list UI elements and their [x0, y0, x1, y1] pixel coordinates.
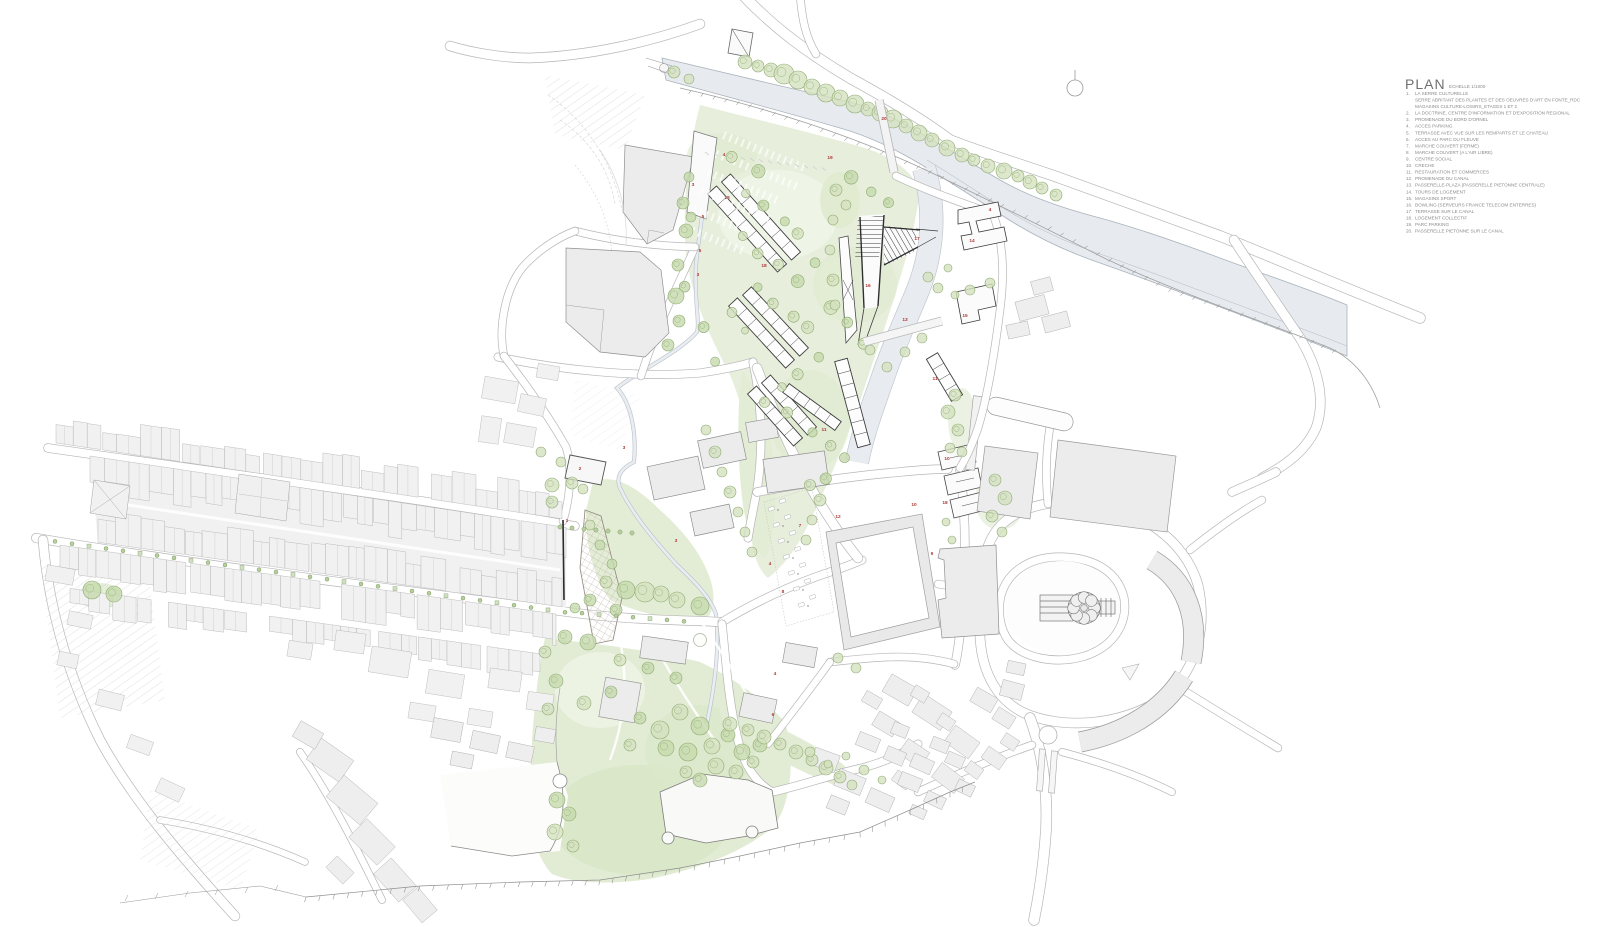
- svg-text:PROMENADE DU BORD D'ORNEL: PROMENADE DU BORD D'ORNEL: [1415, 117, 1489, 122]
- svg-text:8.: 8.: [1406, 150, 1410, 155]
- svg-text:11.: 11.: [1406, 170, 1412, 175]
- svg-text:14: 14: [969, 238, 975, 244]
- svg-text:MARCHE COUVERT (FERME): MARCHE COUVERT (FERME): [1415, 143, 1479, 148]
- svg-text:6.: 6.: [1406, 137, 1410, 142]
- svg-text:4: 4: [774, 671, 777, 677]
- svg-text:12: 12: [835, 514, 841, 520]
- svg-text:ECHELLE 1/1000: ECHELLE 1/1000: [1449, 84, 1486, 89]
- svg-text:15: 15: [962, 313, 968, 319]
- svg-text:17: 17: [914, 236, 920, 242]
- svg-text:16.: 16.: [1406, 202, 1412, 207]
- svg-text:LA DOCTRINE. CENTRE D'INFORMAT: LA DOCTRINE. CENTRE D'INFORMATION ET D'E…: [1415, 111, 1570, 116]
- svg-text:ACCES AU PARC DU FLEUVE: ACCES AU PARC DU FLEUVE: [1415, 137, 1479, 142]
- svg-text:10: 10: [911, 502, 917, 508]
- svg-text:5: 5: [702, 214, 705, 220]
- svg-text:11: 11: [821, 427, 826, 433]
- svg-text:BOWLING (SERVEURS FRANCE TELEC: BOWLING (SERVEURS FRANCE TELECOM ENTERRE…: [1415, 202, 1537, 207]
- svg-text:7.: 7.: [1406, 143, 1410, 148]
- svg-text:9: 9: [931, 551, 934, 557]
- svg-text:20.: 20.: [1406, 229, 1412, 234]
- svg-text:1.: 1.: [1406, 91, 1410, 96]
- svg-text:19: 19: [827, 155, 833, 161]
- svg-text:20: 20: [881, 116, 887, 122]
- svg-text:LOGEMENT COLLECTIF: LOGEMENT COLLECTIF: [1415, 216, 1467, 221]
- svg-text:CRECHE: CRECHE: [1415, 163, 1434, 168]
- svg-text:18: 18: [724, 195, 730, 201]
- svg-text:3: 3: [697, 272, 700, 278]
- svg-text:4: 4: [989, 207, 992, 213]
- svg-text:TERRASSE AVEC VUE SUR LES REMP: TERRASSE AVEC VUE SUR LES REMPARTS ET LE…: [1415, 130, 1548, 135]
- svg-text:PROMENADE DU CANAL: PROMENADE DU CANAL: [1415, 176, 1470, 181]
- svg-text:PASSERELLE-PLAZA (PASSERELLE P: PASSERELLE-PLAZA (PASSERELLE PIETONNE CE…: [1415, 183, 1545, 188]
- svg-text:18: 18: [942, 500, 948, 506]
- svg-text:ACCES PARKING: ACCES PARKING: [1415, 124, 1453, 129]
- svg-text:10: 10: [944, 456, 950, 462]
- svg-text:15.: 15.: [1406, 196, 1412, 201]
- svg-text:TOURS DE LOGEMENT: TOURS DE LOGEMENT: [1415, 189, 1466, 194]
- svg-text:PASSERELLE PIETONNE SUR LE CAN: PASSERELLE PIETONNE SUR LE CANAL: [1415, 229, 1504, 234]
- svg-text:PLAN: PLAN: [1405, 76, 1446, 92]
- svg-text:10.: 10.: [1406, 163, 1412, 168]
- svg-text:13: 13: [902, 317, 908, 323]
- svg-text:4.: 4.: [1406, 124, 1410, 129]
- svg-text:4: 4: [723, 152, 726, 158]
- svg-text:3: 3: [692, 182, 695, 188]
- svg-text:5.: 5.: [1406, 130, 1410, 135]
- svg-text:11: 11: [932, 376, 937, 382]
- svg-text:LA SERRE CULTURELLE: LA SERRE CULTURELLE: [1415, 91, 1468, 96]
- svg-text:PARC PARKING: PARC PARKING: [1415, 222, 1449, 227]
- svg-text:2.: 2.: [1406, 111, 1410, 116]
- svg-text:18.: 18.: [1406, 216, 1412, 221]
- svg-text:6: 6: [772, 712, 775, 718]
- svg-text:SERRE ABRITANT DES PLANTES ET: SERRE ABRITANT DES PLANTES ET DES OEUVRE…: [1415, 98, 1581, 103]
- svg-text:TERRASSE SUR LE CANAL: TERRASSE SUR LE CANAL: [1415, 209, 1475, 214]
- svg-text:19.: 19.: [1406, 222, 1412, 227]
- svg-text:3: 3: [623, 445, 626, 451]
- svg-text:16: 16: [865, 283, 871, 289]
- svg-text:8: 8: [782, 589, 785, 595]
- svg-text:MAGASINS CULTURE-LOISIRS_ETAGE: MAGASINS CULTURE-LOISIRS_ETAGES 1 ET 2: [1415, 104, 1518, 109]
- svg-text:18: 18: [761, 263, 767, 269]
- svg-text:1: 1: [566, 518, 569, 524]
- svg-text:14.: 14.: [1406, 189, 1412, 194]
- svg-text:MARCHE COUVERT (A L'AIR LIBRE): MARCHE COUVERT (A L'AIR LIBRE): [1415, 150, 1493, 155]
- svg-text:13.: 13.: [1406, 183, 1412, 188]
- svg-text:3.: 3.: [1406, 117, 1410, 122]
- svg-text:MAGASINS SPORT: MAGASINS SPORT: [1415, 196, 1456, 201]
- svg-text:CENTRE SOCIAL: CENTRE SOCIAL: [1415, 157, 1452, 162]
- svg-text:7: 7: [799, 523, 802, 529]
- svg-text:3: 3: [675, 538, 678, 544]
- svg-text:17.: 17.: [1406, 209, 1412, 214]
- svg-text:2: 2: [579, 466, 582, 472]
- svg-text:4: 4: [769, 561, 772, 567]
- svg-text:12.: 12.: [1406, 176, 1412, 181]
- svg-text:9.: 9.: [1406, 157, 1410, 162]
- svg-text:5: 5: [699, 248, 702, 254]
- svg-text:RESTAURATION ET COMMERCES: RESTAURATION ET COMMERCES: [1415, 170, 1489, 175]
